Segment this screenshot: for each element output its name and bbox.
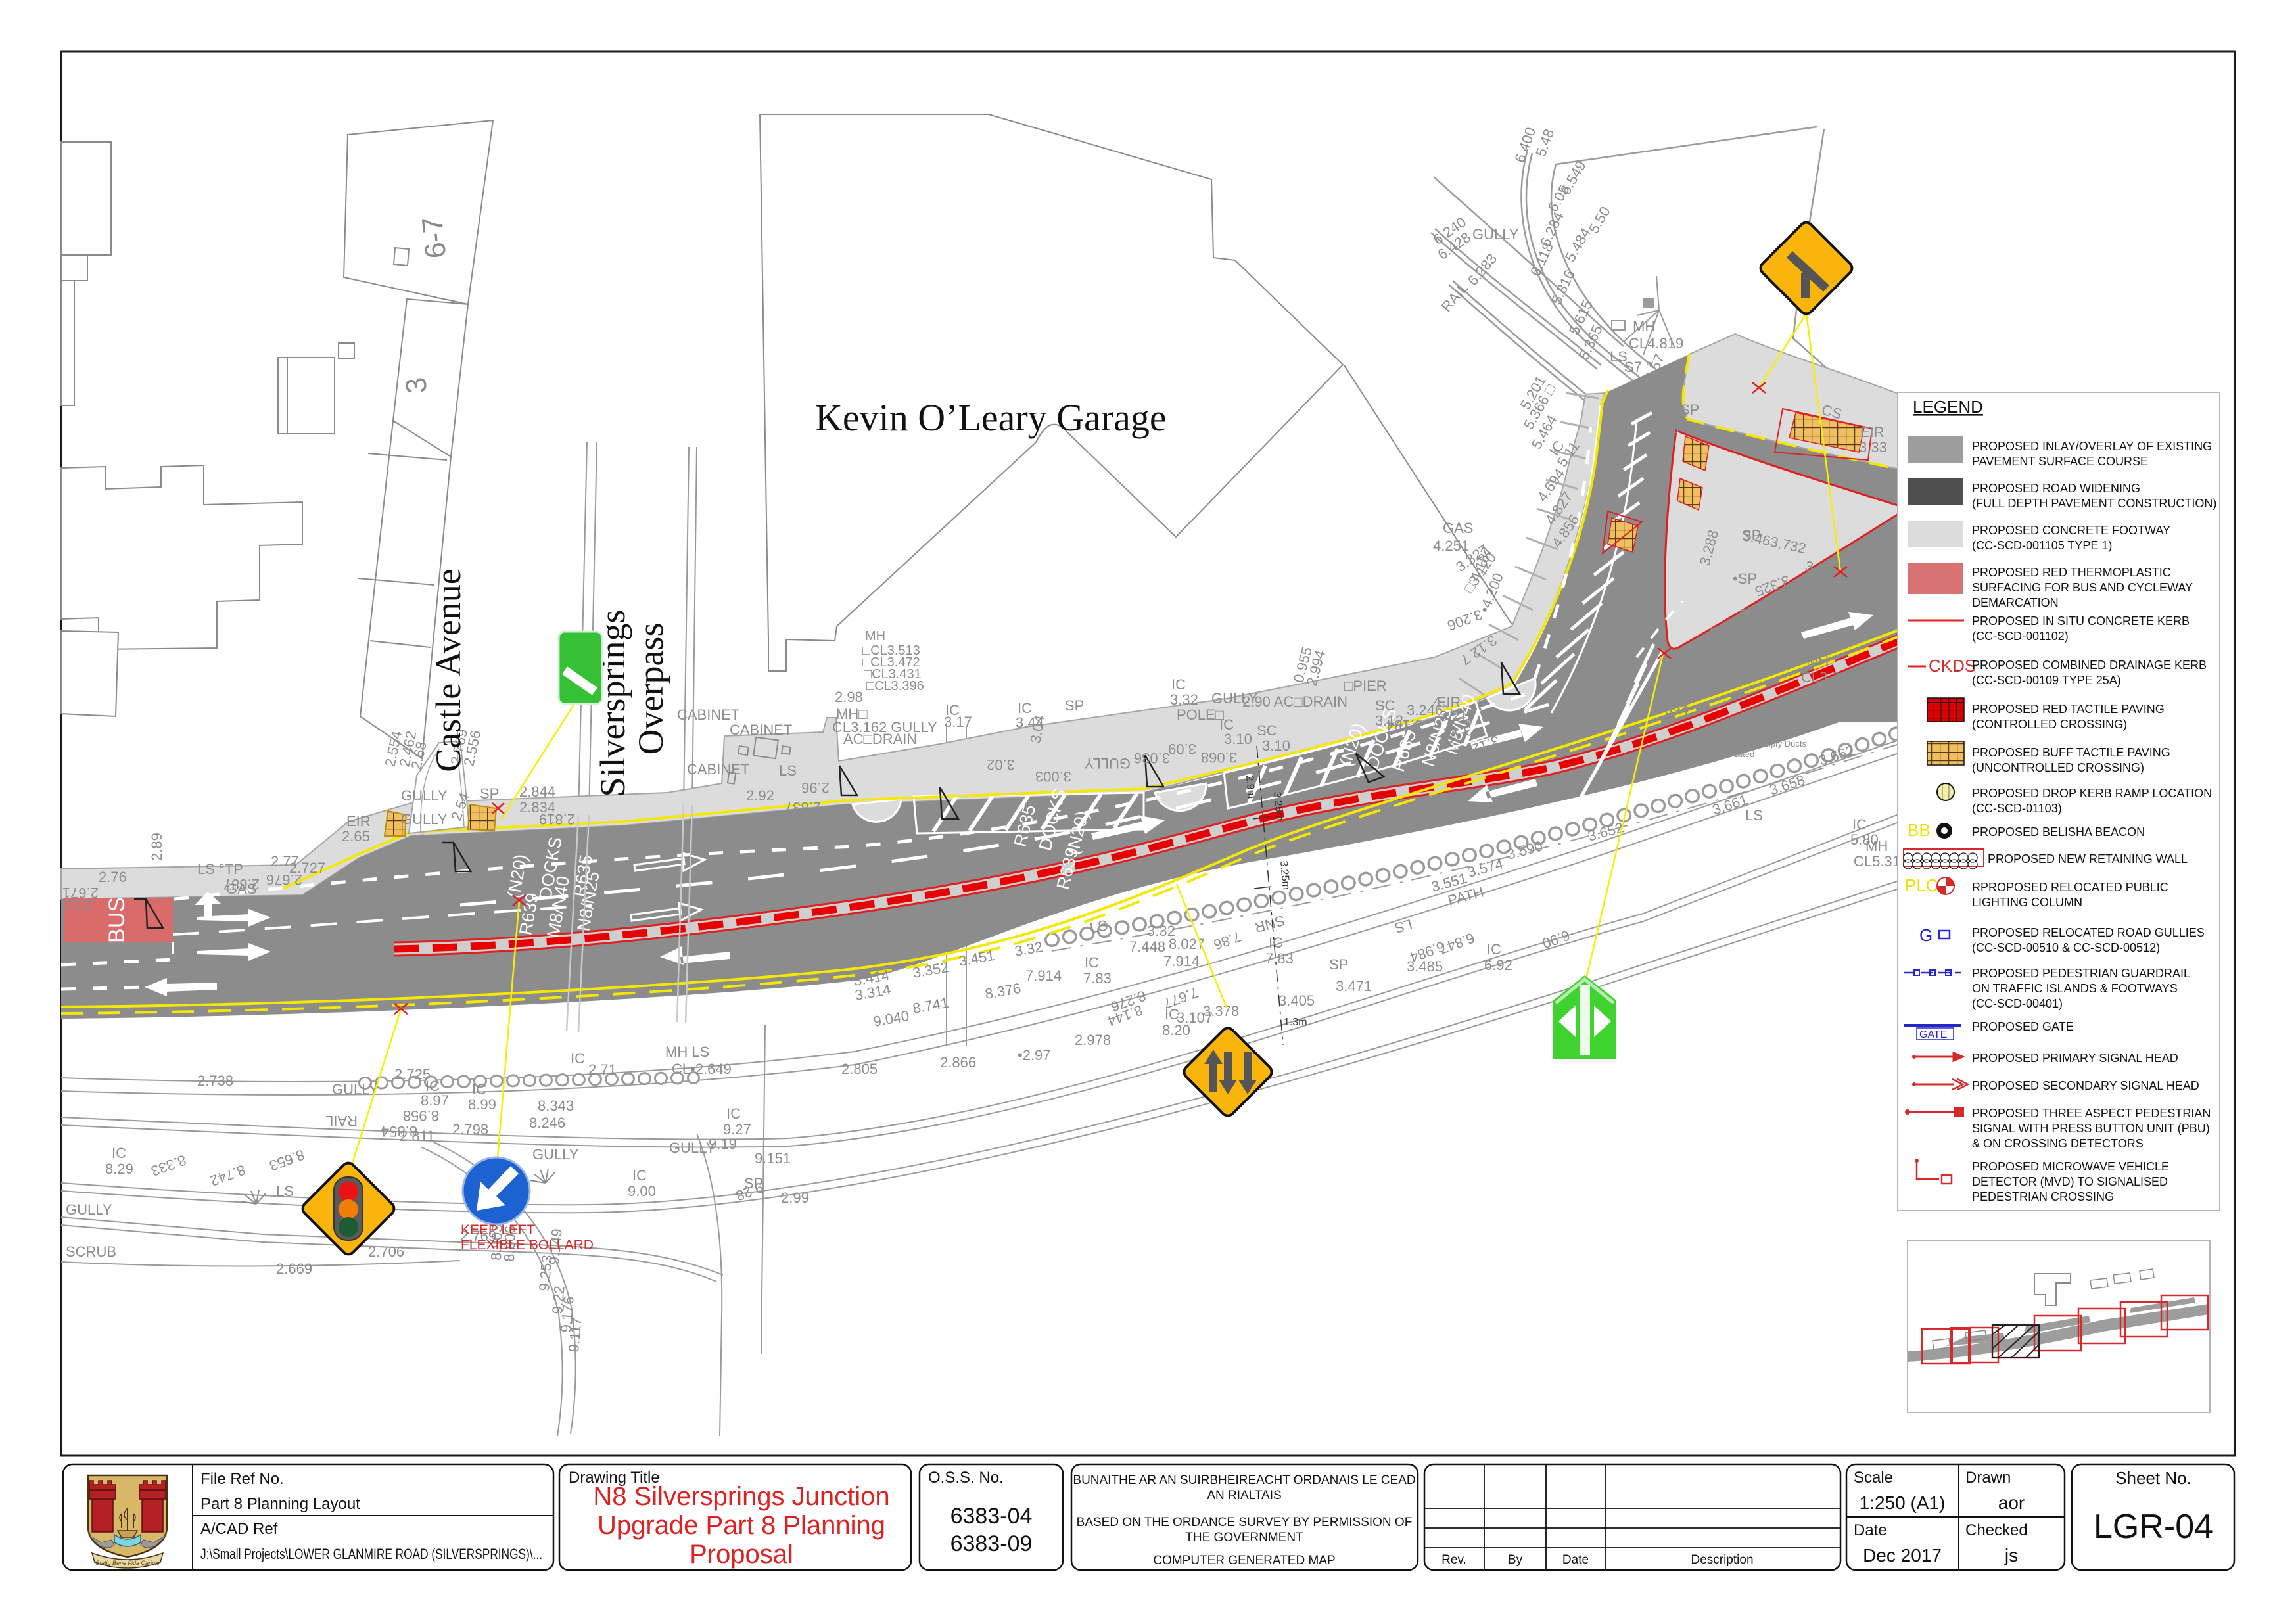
svg-text:Overpass: Overpass	[631, 623, 670, 755]
svg-text:7.448: 7.448	[1129, 938, 1165, 955]
svg-text:EIR: EIR	[1860, 424, 1885, 440]
svg-text:IC: IC	[413, 831, 427, 848]
svg-text:File Ref No.: File Ref No.	[200, 1470, 284, 1488]
svg-text:THE GOVERNMENT: THE GOVERNMENT	[1185, 1531, 1303, 1544]
svg-text:PROPOSED RELOCATED ROAD GULLIE: PROPOSED RELOCATED ROAD GULLIES	[1972, 926, 2205, 939]
svg-text:PROPOSED RED TACTILE PAVING: PROPOSED RED TACTILE PAVING	[1972, 703, 2165, 716]
svg-text:js: js	[2004, 1545, 2018, 1565]
svg-text:(CC-SCD-00401): (CC-SCD-00401)	[1972, 997, 2063, 1010]
svg-text:1:250 (A1): 1:250 (A1)	[1860, 1493, 1946, 1513]
svg-text:6383-04: 6383-04	[950, 1504, 1033, 1529]
svg-text:8.246: 8.246	[529, 1115, 565, 1131]
svg-text:By: By	[1508, 1553, 1523, 1567]
svg-text:2.669: 2.669	[276, 1261, 312, 1277]
svg-text:EIR: EIR	[346, 813, 371, 829]
svg-text:Proposal: Proposal	[690, 1540, 793, 1569]
svg-text:GULLY: GULLY	[332, 1081, 379, 1098]
svg-text:IC: IC	[112, 1145, 126, 1161]
svg-text:LS: LS	[1745, 807, 1763, 823]
svg-text:RAIL: RAIL	[325, 1113, 358, 1129]
svg-text:PROPOSED BELISHA BEACON: PROPOSED BELISHA BEACON	[1972, 825, 2145, 839]
svg-text:2.49: 2.49	[411, 846, 439, 863]
svg-text:SC: SC	[1375, 697, 1395, 714]
svg-text:3.33: 3.33	[1859, 439, 1887, 455]
svg-text:6383-09: 6383-09	[950, 1531, 1033, 1556]
svg-text:PAVEMENT SURFACE COURSE: PAVEMENT SURFACE COURSE	[1972, 455, 2148, 468]
svg-text:2.978: 2.978	[1075, 1032, 1111, 1048]
svg-text:PLC: PLC	[1905, 875, 1938, 895]
svg-text:7.914: 7.914	[1025, 967, 1062, 984]
svg-text:GULLY: GULLY	[66, 1201, 112, 1218]
svg-text:N8 Silversprings Junction: N8 Silversprings Junction	[593, 1482, 889, 1511]
svg-text:8.99: 8.99	[468, 1096, 496, 1113]
svg-text:Dec 2017: Dec 2017	[1863, 1545, 1942, 1565]
svg-text:8.29: 8.29	[105, 1161, 133, 1177]
svg-text:3.10: 3.10	[1224, 731, 1252, 747]
svg-text:IC: IC	[1269, 935, 1283, 951]
svg-text:SP: SP	[1329, 956, 1348, 973]
svg-text:LEGEND: LEGEND	[1913, 397, 1983, 417]
svg-text:PROPOSED DROP KERB RAMP LOCATI: PROPOSED DROP KERB RAMP LOCATION	[1972, 787, 2212, 800]
svg-text:PROPOSED ROAD WIDENING: PROPOSED ROAD WIDENING	[1972, 482, 2140, 495]
svg-text:7.914: 7.914	[1163, 953, 1200, 969]
svg-text:aor: aor	[1998, 1493, 2025, 1513]
svg-text:094: 094	[1664, 701, 1689, 718]
svg-text:2.811: 2.811	[400, 1128, 434, 1144]
svg-text:PROPOSED THREE ASPECT PEDESTRI: PROPOSED THREE ASPECT PEDESTRIAN	[1972, 1107, 2211, 1120]
svg-text:4.251: 4.251	[1433, 538, 1469, 554]
svg-text:SP: SP	[480, 785, 499, 802]
svg-text:3.21: 3.21	[1440, 708, 1468, 724]
svg-text:1.3m: 1.3m	[1284, 1017, 1307, 1028]
svg-text:3: 3	[400, 376, 433, 395]
svg-text:PROPOSED IN SITU CONCRETE KERB: PROPOSED IN SITU CONCRETE KERB	[1972, 614, 2190, 628]
svg-text:J:\Small Projects\LOWER GLANMI: J:\Small Projects\LOWER GLANMIRE ROAD (S…	[200, 1546, 542, 1562]
svg-text:2.676: 2.676	[266, 871, 302, 888]
svg-text:IC: IC	[1487, 941, 1501, 958]
svg-text:A/CAD Ref: A/CAD Ref	[200, 1520, 278, 1538]
svg-text:2.805: 2.805	[841, 1061, 878, 1077]
svg-text:PROPOSED GATE: PROPOSED GATE	[1972, 1020, 2074, 1033]
svg-text:Scale: Scale	[1854, 1469, 1893, 1487]
svg-text:7.83: 7.83	[1083, 970, 1112, 986]
svg-text:2.92: 2.92	[746, 787, 774, 804]
svg-text:□PIER: □PIER	[1344, 678, 1387, 694]
svg-text:SURFACING FOR BUS AND CYCLEWAY: SURFACING FOR BUS AND CYCLEWAY	[1972, 581, 2193, 594]
svg-text:3.036: 3.036	[1134, 750, 1170, 766]
svg-text:PROPOSED COMBINED DRAINAGE KER: PROPOSED COMBINED DRAINAGE KERB	[1972, 659, 2207, 672]
svg-text:PROPOSED INLAY/OVERLAY OF EXIS: PROPOSED INLAY/OVERLAY OF EXISTING	[1972, 440, 2212, 453]
svg-text:PEDESTRIAN CROSSING: PEDESTRIAN CROSSING	[1972, 1190, 2114, 1203]
svg-text:□CL3.396: □CL3.396	[866, 679, 924, 693]
svg-text:SP: SP	[1840, 568, 1860, 585]
svg-text:PROPOSED SECONDARY SIGNAL HEAD: PROPOSED SECONDARY SIGNAL HEAD	[1972, 1079, 2199, 1092]
svg-text:DEMARCATION: DEMARCATION	[1972, 596, 2059, 609]
svg-text:AN RIALTAIS: AN RIALTAIS	[1207, 1489, 1281, 1502]
svg-text:3.068: 3.068	[1201, 749, 1237, 766]
svg-text:Kevin O’Leary Garage: Kevin O’Leary Garage	[815, 396, 1167, 439]
svg-text:3.378: 3.378	[1203, 1003, 1239, 1019]
svg-text:2.96: 2.96	[801, 779, 830, 796]
svg-text:CL3.29: CL3.29	[1801, 669, 1848, 685]
svg-text:CABINET: CABINET	[687, 761, 749, 777]
svg-text:2.866: 2.866	[940, 1054, 976, 1071]
svg-text:(CC-SCD-00510 & CC-SCD-00512): (CC-SCD-00510 & CC-SCD-00512)	[1972, 941, 2160, 954]
svg-text:MH: MH	[1806, 652, 1829, 668]
svg-text:2.76: 2.76	[99, 869, 127, 885]
svg-text:3.17: 3.17	[944, 714, 972, 730]
svg-text:2.89: 2.89	[149, 833, 165, 861]
svg-text:CABINET: CABINET	[677, 707, 739, 723]
svg-text:LS: LS	[779, 762, 797, 779]
svg-text:GULLY: GULLY	[1709, 624, 1756, 641]
svg-text:PROPOSED BUFF TACTILE PAVING: PROPOSED BUFF TACTILE PAVING	[1972, 746, 2170, 759]
svg-text:Checked: Checked	[1965, 1521, 2028, 1539]
svg-text:2.99: 2.99	[781, 1190, 809, 1206]
svg-text:(CC-SCD-00109 TYPE 25A): (CC-SCD-00109 TYPE 25A)	[1972, 674, 2121, 687]
svg-text:Statio Bene Fida Carinis: Statio Bene Fida Carinis	[95, 1560, 160, 1566]
svg-text:2.819: 2.819	[539, 811, 575, 827]
svg-text:IC: IC	[1085, 954, 1099, 971]
svg-text:2.844: 2.844	[519, 783, 555, 800]
svg-text:AC□DRAIN: AC□DRAIN	[843, 731, 917, 747]
svg-text:3.32: 3.32	[1147, 923, 1175, 939]
svg-text:CL4.819: CL4.819	[1629, 335, 1683, 352]
svg-text:CABINET: CABINET	[730, 722, 792, 738]
svg-text:Sheet No.: Sheet No.	[2115, 1468, 2191, 1488]
svg-text:PROPOSED CONCRETE FOOTWAY: PROPOSED CONCRETE FOOTWAY	[1972, 524, 2170, 537]
svg-text:3.32: 3.32	[1170, 691, 1198, 708]
svg-text:PROPOSED RED THERMOPLASTIC: PROPOSED RED THERMOPLASTIC	[1972, 566, 2171, 579]
svg-text:PROPOSED PRIMARY SIGNAL HEAD: PROPOSED PRIMARY SIGNAL HEAD	[1972, 1052, 2178, 1065]
svg-text:GULLY: GULLY	[401, 787, 448, 804]
svg-text:LS: LS	[276, 1183, 294, 1199]
svg-text:3.471: 3.471	[1336, 978, 1372, 994]
svg-text:2.51: 2.51	[64, 897, 92, 914]
svg-text:Date: Date	[1562, 1553, 1589, 1567]
svg-text:3.405: 3.405	[1278, 992, 1315, 1009]
svg-text:√Unknown—Empty Ducts: √Unknown—Empty Ducts	[1709, 739, 1807, 749]
svg-text:BUS: BUS	[105, 897, 129, 943]
svg-text:RPROPOSED RELOCATED PUBLIC: RPROPOSED RELOCATED PUBLIC	[1972, 881, 2168, 894]
svg-text:(CC-SCD-001105 TYPE 1): (CC-SCD-001105 TYPE 1)	[1972, 539, 2112, 552]
svg-text:LIGHTING COLUMN: LIGHTING COLUMN	[1972, 896, 2082, 909]
svg-text:8.958: 8.958	[403, 1107, 439, 1124]
svg-text:CKDS: CKDS	[1929, 656, 1976, 676]
svg-text:2.837: 2.837	[785, 799, 821, 816]
svg-text:CL•2.649: CL•2.649	[672, 1061, 732, 1077]
svg-text:Rev.: Rev.	[1441, 1553, 1466, 1567]
svg-text:IC: IC	[1171, 676, 1186, 693]
svg-text:6.92: 6.92	[1484, 957, 1512, 973]
svg-text:DETECTOR (MVD) TO SIGNALISED: DETECTOR (MVD) TO SIGNALISED	[1972, 1175, 2168, 1188]
svg-text:3.10: 3.10	[1262, 737, 1290, 754]
svg-text:2.798: 2.798	[452, 1121, 488, 1138]
svg-text:2.90 AC□DRAIN: 2.90 AC□DRAIN	[1242, 693, 1347, 710]
svg-text:2.98: 2.98	[835, 689, 863, 705]
svg-text:MH is Silted: MH is Silted	[1709, 749, 1754, 759]
svg-text:MH: MH	[1865, 838, 1888, 854]
svg-text:(UNCONTROLLED CROSSING): (UNCONTROLLED CROSSING)	[1972, 761, 2144, 774]
svg-text:9.117: 9.117	[565, 1316, 585, 1353]
svg-text:CL.3.268: CL.3.268	[1709, 728, 1744, 738]
svg-text:8.97: 8.97	[421, 1092, 449, 1109]
svg-text:2.71: 2.71	[588, 1061, 617, 1078]
svg-text:O.S.S. No.: O.S.S. No.	[928, 1469, 1004, 1487]
svg-text:LGR-04: LGR-04	[2094, 1508, 2213, 1546]
svg-text:IC: IC	[632, 1167, 647, 1184]
svg-text:GULLY: GULLY	[1084, 755, 1131, 772]
svg-text:(CONTROLLED CROSSING): (CONTROLLED CROSSING)	[1972, 718, 2127, 731]
svg-text:BB: BB	[1908, 820, 1931, 840]
svg-text:SC: SC	[1257, 722, 1277, 739]
svg-text:8.343: 8.343	[538, 1098, 574, 1114]
svg-text:BASED ON THE ORDANCE SURVEY BY: BASED ON THE ORDANCE SURVEY BY PERMISSIO…	[1077, 1516, 1413, 1529]
svg-text:Upgrade Part 8 Planning: Upgrade Part 8 Planning	[597, 1511, 885, 1540]
svg-text:2.738: 2.738	[197, 1073, 233, 1089]
svg-text:•2.97: •2.97	[1018, 1047, 1051, 1063]
svg-text:POLE□: POLE□	[1177, 707, 1224, 723]
svg-text:Date: Date	[1854, 1521, 1887, 1539]
svg-text:SP: SP	[1065, 697, 1084, 714]
svg-text:PROPOSED PEDESTRIAN GUARDRAIL: PROPOSED PEDESTRIAN GUARDRAIL	[1972, 967, 2190, 980]
svg-text:G: G	[1919, 925, 1933, 945]
svg-text:3.02: 3.02	[987, 756, 1015, 773]
svg-text:GATE: GATE	[1919, 1029, 1947, 1040]
svg-text:Description: Description	[1691, 1553, 1753, 1567]
svg-text:GULLY: GULLY	[1472, 226, 1519, 243]
svg-text:9.00: 9.00	[628, 1183, 656, 1199]
svg-text:& ON CROSSING DETECTORS: & ON CROSSING DETECTORS	[1972, 1137, 2144, 1150]
svg-text:(CC-SCD-01103): (CC-SCD-01103)	[1972, 802, 2062, 815]
svg-text:(CC-SCD-001102): (CC-SCD-001102)	[1972, 630, 2069, 643]
svg-text:(FULL DEPTH PAVEMENT CONSTRUCT: (FULL DEPTH PAVEMENT CONSTRUCTION)	[1972, 497, 2216, 510]
svg-text:PROPOSED MICROWAVE VEHICLE: PROPOSED MICROWAVE VEHICLE	[1972, 1160, 2169, 1173]
svg-text:Castle Avenue: Castle Avenue	[429, 568, 468, 772]
svg-text:IC: IC	[1852, 816, 1867, 833]
svg-text:MH: MH	[865, 629, 885, 643]
svg-text:6-7: 6-7	[416, 215, 452, 260]
svg-text:IC: IC	[472, 1081, 486, 1098]
svg-text:GULLY: GULLY	[669, 1140, 716, 1156]
svg-text:8.20: 8.20	[1162, 1022, 1190, 1038]
svg-text:GULLY: GULLY	[401, 811, 448, 827]
svg-text:3.184: 3.184	[1386, 717, 1422, 733]
svg-text:3.09: 3.09	[1168, 741, 1196, 757]
svg-text:3.003: 3.003	[1035, 768, 1071, 785]
svg-text:COMPUTER GENERATED MAP: COMPUTER GENERATED MAP	[1153, 1554, 1335, 1567]
svg-text:2.706: 2.706	[368, 1243, 404, 1260]
svg-text:FLEXIBLE BOLLARD: FLEXIBLE BOLLARD	[461, 1238, 594, 1253]
svg-text:KEEP LEFT: KEEP LEFT	[461, 1222, 535, 1238]
svg-text:9.151: 9.151	[755, 1150, 791, 1167]
svg-text:MH LS: MH LS	[665, 1044, 709, 1060]
svg-text:Part 8 Planning Layout: Part 8 Planning Layout	[200, 1495, 360, 1513]
svg-text:2.687: 2.687	[223, 876, 260, 892]
svg-text:SCRUB: SCRUB	[66, 1243, 116, 1260]
svg-text:2.65: 2.65	[342, 828, 370, 845]
svg-text:SIGNAL WITH PRESS BUTTON UNIT: SIGNAL WITH PRESS BUTTON UNIT (PBU)	[1972, 1122, 2210, 1135]
svg-text:IC: IC	[571, 1050, 585, 1067]
svg-text:BUNAITHE AR AN SUIRBHEIREACHT: BUNAITHE AR AN SUIRBHEIREACHT ORDANAIS L…	[1073, 1473, 1415, 1487]
svg-text:7.83: 7.83	[1265, 950, 1294, 967]
svg-text:PROPOSED NEW RETAINING WALL: PROPOSED NEW RETAINING WALL	[1988, 852, 2188, 866]
svg-text:LS °TP: LS °TP	[197, 861, 243, 877]
svg-text:MH: MH	[1633, 318, 1655, 335]
svg-text:ON TRAFFIC ISLANDS & FOOTWAYS: ON TRAFFIC ISLANDS & FOOTWAYS	[1972, 982, 2178, 995]
svg-text:GAS: GAS	[1443, 520, 1473, 536]
svg-text:IC: IC	[726, 1105, 741, 1122]
svg-text:SP: SP	[1742, 527, 1761, 544]
svg-text:2.9m: 2.9m	[1244, 775, 1257, 799]
svg-text:SP: SP	[744, 1175, 763, 1192]
svg-text:Drawn: Drawn	[1965, 1469, 2011, 1487]
svg-text:GULLY: GULLY	[532, 1146, 579, 1163]
